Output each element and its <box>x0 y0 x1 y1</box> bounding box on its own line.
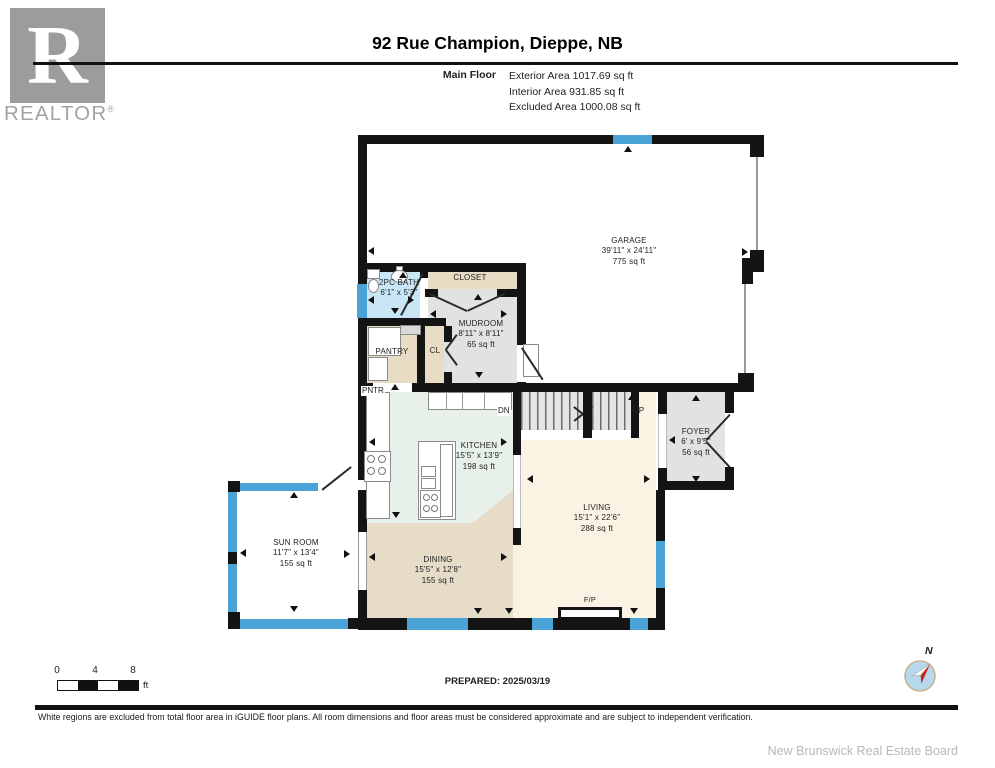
wall-opening <box>513 455 521 528</box>
pntr-label: PNTR <box>361 386 385 396</box>
burner-icon <box>378 455 386 463</box>
room-name: 2PC BATH <box>379 278 419 288</box>
measure-arrow <box>501 553 507 561</box>
room-name: MUDROOM <box>458 319 503 329</box>
room-dims: 15'5" x 13'9" <box>456 451 502 461</box>
sunroom-window-wall <box>240 483 320 491</box>
sunroom-window-wall <box>228 564 237 612</box>
room-area: 775 sq ft <box>602 257 657 267</box>
wall <box>513 383 754 392</box>
fireplace-text: F/P <box>584 595 596 605</box>
room-name: DINING <box>415 555 461 565</box>
room-name: PNTR <box>362 386 384 395</box>
room-dims: 8'11" x 8'11" <box>458 329 503 339</box>
sunroom-corner-post <box>228 481 240 492</box>
measure-arrow <box>369 553 375 561</box>
window <box>630 618 648 630</box>
sunroom-corner-post <box>348 618 358 629</box>
room-name: CL <box>430 346 441 356</box>
room-name: FOYER <box>681 427 711 437</box>
garage-door-line <box>744 284 746 373</box>
wall <box>656 490 665 541</box>
stairs-down-label: DN <box>497 406 511 416</box>
measure-arrow <box>505 608 513 614</box>
room-name: CLOSET <box>453 273 486 283</box>
header-rule <box>33 62 958 65</box>
room-name: PANTRY <box>376 347 409 357</box>
burner-icon <box>431 505 438 512</box>
stairs-down-treads <box>521 392 583 430</box>
foyer-label: FOYER 6' x 9'5" 56 sq ft <box>681 427 711 458</box>
fridge <box>440 444 453 517</box>
interior-window <box>358 532 367 590</box>
room-dims: 15'1" x 22'6" <box>574 513 620 523</box>
burner-icon <box>423 494 430 501</box>
burner-icon <box>423 505 430 512</box>
sunroom-label: SUN ROOM 11'7" x 13'4" 155 sq ft <box>273 538 319 569</box>
room-name: LIVING <box>574 503 620 513</box>
counter-divider <box>462 392 463 410</box>
stairs-up-treads <box>592 392 631 430</box>
scale-tick-8: 8 <box>126 665 140 676</box>
measure-arrow <box>430 310 436 318</box>
measure-arrow <box>474 294 482 300</box>
room-name: SUN ROOM <box>273 538 319 548</box>
wall <box>513 528 521 545</box>
stairs-up-text: UP <box>633 406 644 415</box>
measure-arrow <box>630 608 638 614</box>
floor-plan: GARAGE 39'11" x 24'11" 775 sq ft 2PC BAT… <box>0 0 995 768</box>
measure-arrow <box>240 549 246 557</box>
bath-label: 2PC BATH 6'1" x 5'3" <box>379 278 419 299</box>
room-area: 198 sq ft <box>456 462 502 472</box>
scale-tick-4: 4 <box>88 665 102 676</box>
pantry-shelf <box>368 357 388 381</box>
measure-arrow <box>392 512 400 518</box>
dishwasher <box>421 466 436 477</box>
floor-plan-page: R REALTOR® 92 Rue Champion, Dieppe, NB M… <box>0 0 995 768</box>
realtor-logo-icon: R <box>10 8 105 103</box>
sunroom-corner-post <box>228 612 240 629</box>
measure-arrow <box>527 475 533 483</box>
entry-door-opening <box>725 413 734 467</box>
wall <box>742 272 753 284</box>
wall <box>658 468 667 481</box>
pantry-label: PANTRY <box>376 347 409 357</box>
measure-arrow <box>391 308 399 314</box>
wall <box>583 392 592 438</box>
stairs-up-label: UP <box>633 406 644 416</box>
registered-symbol: ® <box>107 104 115 114</box>
sunroom-window-wall <box>228 492 237 552</box>
counter-divider <box>446 392 447 410</box>
realtor-logo-letter: R <box>27 8 88 103</box>
measure-arrow <box>475 372 483 378</box>
footer-rule <box>35 705 958 710</box>
disclaimer-text: White regions are excluded from total fl… <box>38 712 753 722</box>
compass-icon <box>896 645 944 697</box>
wall <box>725 392 734 413</box>
window <box>357 284 367 318</box>
garage-label: GARAGE 39'11" x 24'11" 775 sq ft <box>602 236 657 267</box>
measure-arrow <box>474 608 482 614</box>
wall <box>750 144 764 157</box>
wall <box>658 392 667 414</box>
burner-icon <box>378 467 386 475</box>
measure-arrow <box>669 436 675 444</box>
prepared-date: PREPARED: 2025/03/19 <box>0 676 995 687</box>
toilet-bowl <box>368 279 379 293</box>
dining-label: DINING 15'5" x 12'8" 155 sq ft <box>415 555 461 586</box>
sink-cabinet <box>421 478 436 489</box>
room-dims: 39'11" x 24'11" <box>602 246 657 256</box>
mudroom-label: MUDROOM 8'11" x 8'11" 65 sq ft <box>458 319 503 350</box>
counter-divider <box>484 392 485 410</box>
window <box>532 618 553 630</box>
cl-label: CL <box>430 346 441 356</box>
fireplace <box>558 607 622 620</box>
measure-arrow <box>368 296 374 304</box>
measure-arrow <box>624 146 632 152</box>
room-dims: 6'1" x 5'3" <box>379 288 419 298</box>
kitchen-label: KITCHEN 15'5" x 13'9" 198 sq ft <box>456 441 502 472</box>
closet-label: CLOSET <box>453 273 486 283</box>
wall <box>358 263 526 272</box>
garage-door-line <box>756 157 758 250</box>
wall <box>412 383 517 392</box>
room-name: KITCHEN <box>456 441 502 451</box>
room-dims: 11'7" x 13'4" <box>273 548 319 558</box>
measure-arrow <box>628 394 636 400</box>
room-dims: 6' x 9'5" <box>681 437 711 447</box>
measure-arrow <box>501 310 507 318</box>
measure-arrow <box>391 384 399 390</box>
board-credit: New Brunswick Real Estate Board <box>600 744 958 758</box>
burner-icon <box>431 494 438 501</box>
compass-north-label: N <box>925 645 933 657</box>
sunroom-mid-post <box>228 552 237 564</box>
measure-arrow <box>369 438 375 446</box>
fireplace-label: F/P <box>584 595 596 605</box>
room-area: 155 sq ft <box>415 576 461 586</box>
stairs-down-text: DN <box>498 406 510 415</box>
sunroom-window-wall <box>240 619 348 629</box>
wall <box>358 135 764 144</box>
room-area: 155 sq ft <box>273 559 319 569</box>
pantry-shelf <box>400 325 421 335</box>
wall <box>358 590 367 630</box>
measure-arrow <box>368 247 374 255</box>
living-label: LIVING 15'1" x 22'6" 288 sq ft <box>574 503 620 534</box>
room-area: 65 sq ft <box>458 340 503 350</box>
wall <box>513 392 521 455</box>
wall <box>658 481 734 490</box>
measure-arrow <box>692 395 700 401</box>
window <box>656 541 665 588</box>
wall <box>742 258 764 272</box>
wall <box>417 326 425 392</box>
measure-arrow <box>344 550 350 558</box>
scale-tick-0: 0 <box>50 665 64 676</box>
wall <box>444 372 452 392</box>
realtor-wordmark: REALTOR® <box>4 102 115 126</box>
measure-arrow <box>290 606 298 612</box>
bath-sink-tap <box>396 266 403 271</box>
measure-arrow <box>644 475 650 483</box>
room-name: GARAGE <box>602 236 657 246</box>
realtor-wordmark-text: REALTOR <box>4 102 107 125</box>
window <box>613 135 652 144</box>
room-dims: 15'5" x 12'8" <box>415 565 461 575</box>
measure-arrow <box>290 492 298 498</box>
measure-arrow <box>742 248 748 256</box>
wall-opening <box>658 414 667 468</box>
burner-icon <box>367 467 375 475</box>
room-area: 288 sq ft <box>574 524 620 534</box>
window <box>407 618 468 630</box>
stairs-landing <box>521 430 631 440</box>
burner-icon <box>367 455 375 463</box>
room-area: 56 sq ft <box>681 448 711 458</box>
measure-arrow <box>692 476 700 482</box>
